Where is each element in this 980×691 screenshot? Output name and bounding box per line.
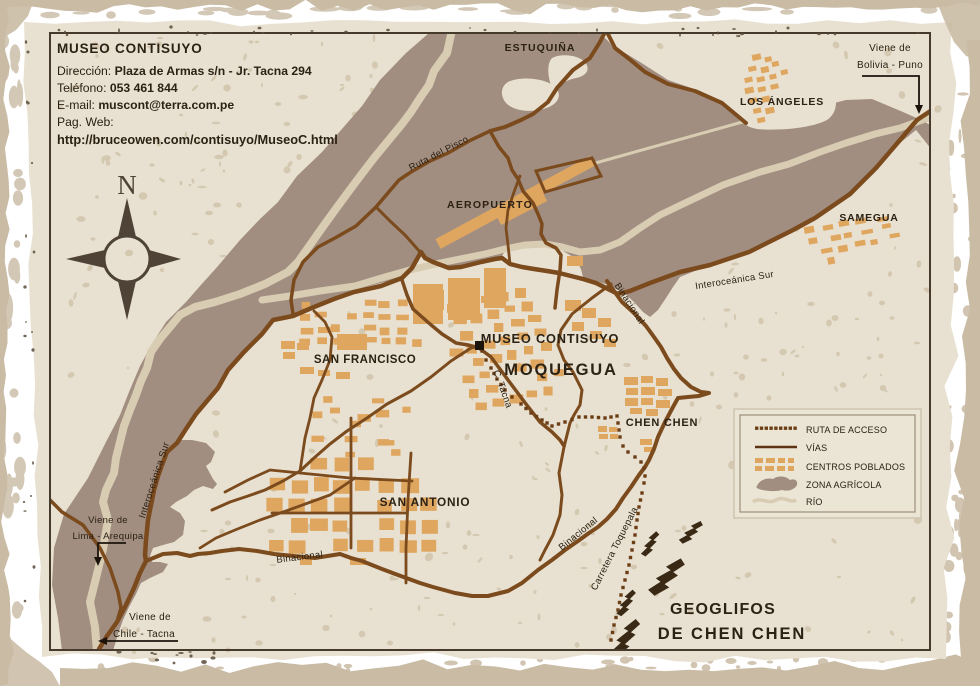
svg-text:E-mail: muscont@terra.com.pe: E-mail: muscont@terra.com.pe: [57, 98, 234, 112]
svg-text:MOQUEGUA: MOQUEGUA: [504, 361, 617, 379]
svg-text:Bolivia - Puno: Bolivia - Puno: [857, 60, 923, 71]
svg-text:Dirección: Plaza de Armas s/n: Dirección: Plaza de Armas s/n - Jr. Tacn…: [57, 64, 312, 78]
svg-text:VÍAS: VÍAS: [806, 443, 827, 453]
svg-text:MUSEO CONTISUYO: MUSEO CONTISUYO: [481, 331, 620, 346]
svg-text:N: N: [117, 170, 137, 200]
svg-text:SAN ANTONIO: SAN ANTONIO: [380, 495, 471, 509]
svg-text:CHEN CHEN: CHEN CHEN: [626, 417, 699, 429]
svg-text:Viene de: Viene de: [869, 43, 911, 54]
svg-text:ZONA AGRÍCOLA: ZONA AGRÍCOLA: [806, 480, 882, 490]
svg-text:Viene de: Viene de: [88, 515, 128, 526]
svg-text:AEROPUERTO: AEROPUERTO: [447, 199, 533, 211]
svg-text:Lima - Arequipa: Lima - Arequipa: [72, 531, 143, 542]
svg-text:CENTROS POBLADOS: CENTROS POBLADOS: [806, 462, 905, 472]
svg-text:RUTA DE ACCESO: RUTA DE ACCESO: [806, 425, 887, 435]
svg-text:Chile - Tacna: Chile - Tacna: [113, 629, 175, 640]
svg-text:Teléfono: 053 461 844: Teléfono: 053 461 844: [57, 81, 178, 95]
svg-text:LOS ÁNGELES: LOS ÁNGELES: [740, 95, 824, 108]
svg-text:ESTUQUIÑA: ESTUQUIÑA: [505, 41, 576, 54]
svg-text:SAN FRANCISCO: SAN FRANCISCO: [314, 354, 416, 366]
svg-text:DE CHEN CHEN: DE CHEN CHEN: [658, 625, 806, 643]
svg-text:http://bruceowen.com/contisuyo: http://bruceowen.com/contisuyo/MuseoC.ht…: [57, 132, 338, 147]
svg-text:Viene de: Viene de: [129, 612, 171, 623]
svg-text:MUSEO CONTISUYO: MUSEO CONTISUYO: [57, 41, 203, 56]
svg-text:RÍO: RÍO: [806, 497, 823, 507]
svg-text:GEOGLIFOS: GEOGLIFOS: [670, 601, 776, 618]
svg-text:Pag. Web:: Pag. Web:: [57, 115, 114, 129]
svg-text:SAMEGUA: SAMEGUA: [839, 212, 898, 224]
